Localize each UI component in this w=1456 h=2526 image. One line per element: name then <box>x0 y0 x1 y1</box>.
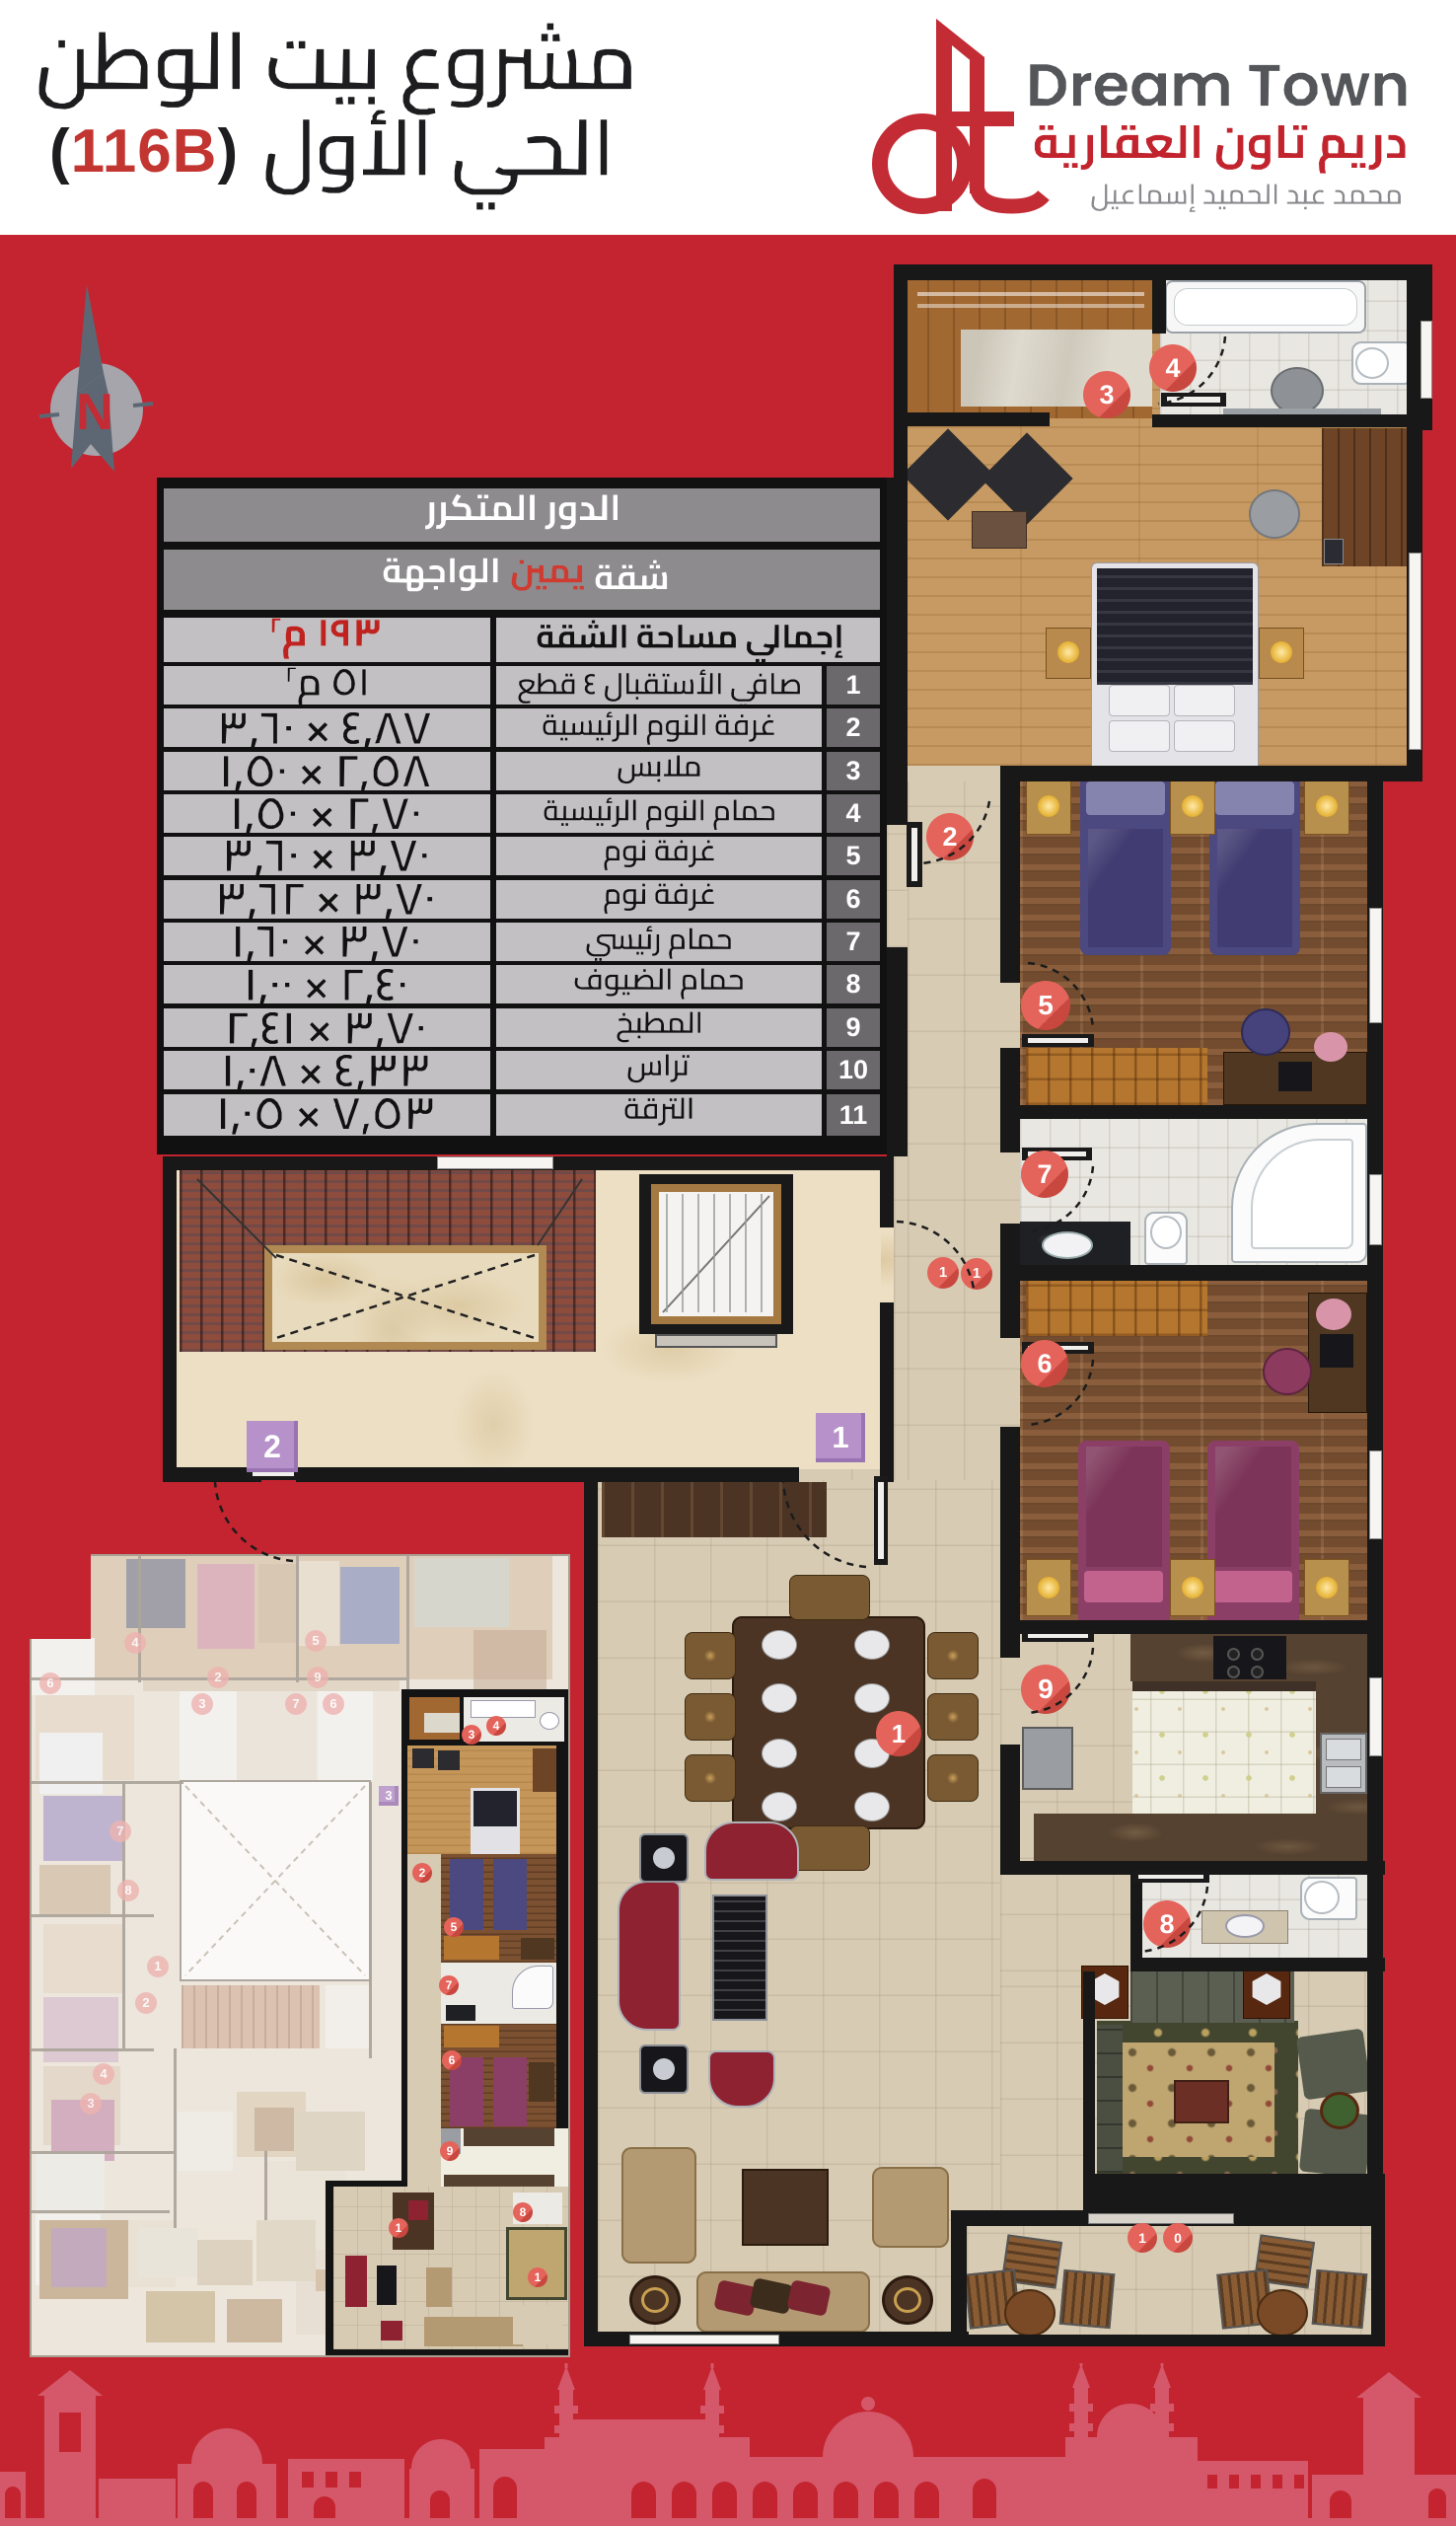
svg-text:N: N <box>76 384 113 441</box>
